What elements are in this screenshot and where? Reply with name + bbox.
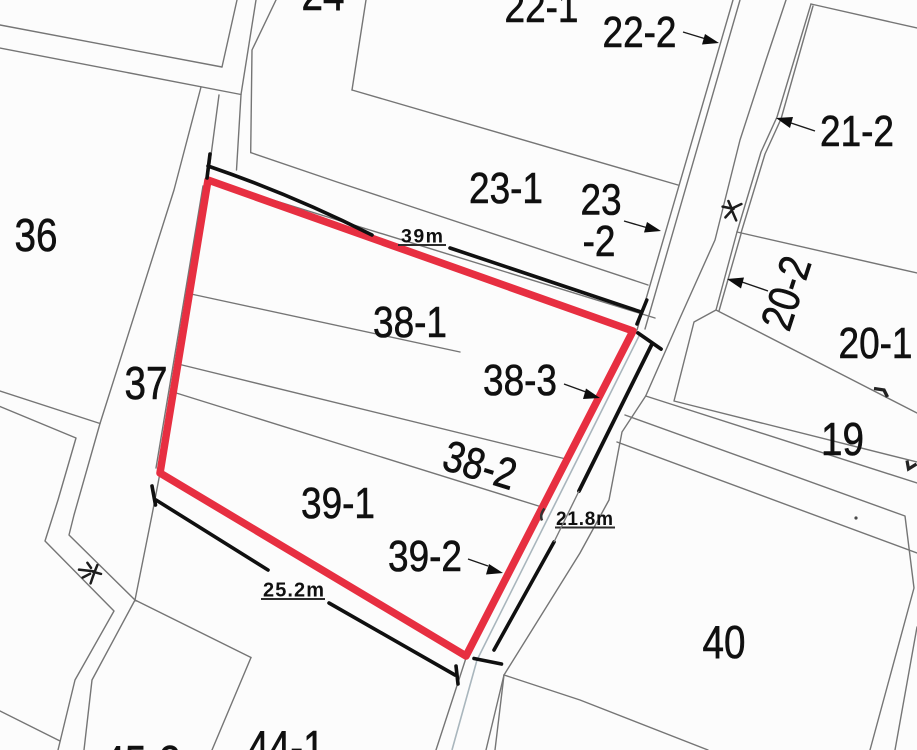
svg-text:19: 19 [821,414,864,465]
svg-text:20-1: 20-1 [839,318,913,368]
svg-text:37: 37 [125,358,168,409]
svg-text:20-2: 20-2 [751,250,821,336]
svg-text:39-1: 39-1 [301,478,375,528]
svg-text:22-1: 22-1 [505,0,579,32]
svg-text:21-2: 21-2 [820,106,894,156]
svg-text:44-1: 44-1 [247,722,324,750]
svg-text:40: 40 [703,617,746,668]
svg-text:39-2: 39-2 [388,531,462,581]
svg-text:24: 24 [302,0,345,20]
svg-text:38-2: 38-2 [437,430,522,499]
svg-text:45-2: 45-2 [103,737,180,750]
svg-text:22-2: 22-2 [603,7,677,57]
svg-text:36: 36 [15,210,58,261]
svg-text:23-1: 23-1 [469,163,543,213]
svg-text:38-1: 38-1 [373,297,447,347]
svg-text:38-3: 38-3 [483,355,557,405]
svg-text:-2: -2 [583,216,616,266]
